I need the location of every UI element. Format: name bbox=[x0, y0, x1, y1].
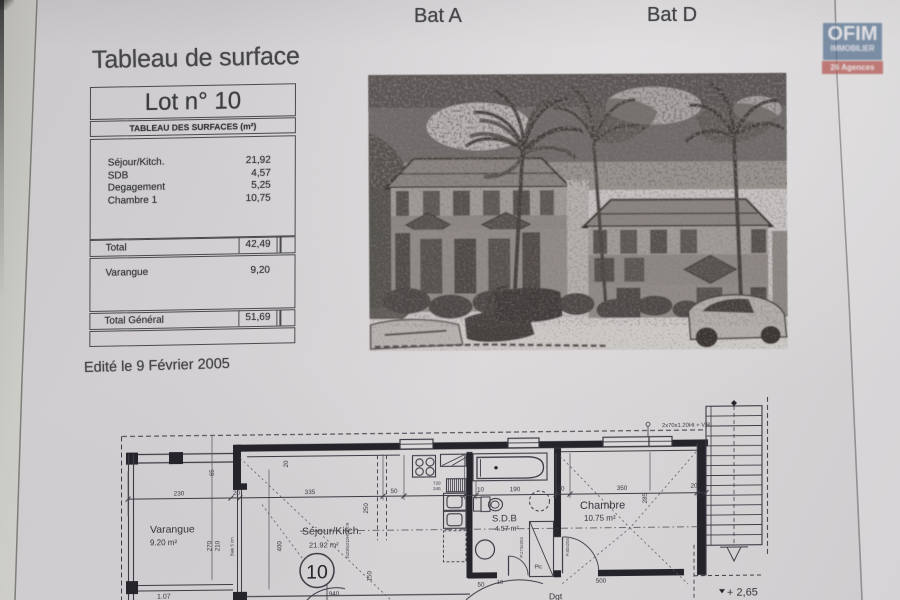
svg-text:335: 335 bbox=[305, 489, 316, 496]
svg-text:21.92 m²: 21.92 m² bbox=[309, 540, 339, 549]
svg-text:10: 10 bbox=[477, 487, 485, 494]
svg-text:20: 20 bbox=[233, 490, 241, 497]
svg-text:2x70x1.20Ht + V.R.: 2x70x1.20Ht + V.R. bbox=[662, 423, 712, 430]
svg-text:400: 400 bbox=[277, 541, 284, 552]
svg-text:1.07: 1.07 bbox=[157, 594, 171, 600]
svg-text:285: 285 bbox=[642, 492, 649, 503]
svg-text:50: 50 bbox=[390, 488, 398, 495]
svg-text:Dgt: Dgt bbox=[549, 591, 563, 600]
svg-text:P.40x204: P.40x204 bbox=[565, 538, 570, 557]
svg-text:9.20 m²: 9.20 m² bbox=[150, 538, 177, 547]
svg-text:P.173x204: P.173x204 bbox=[519, 537, 524, 558]
svg-text:65: 65 bbox=[209, 469, 216, 477]
svg-text:250: 250 bbox=[363, 503, 370, 514]
svg-text:Baie 5 cm: Baie 5 cm bbox=[230, 537, 235, 556]
svg-text:20: 20 bbox=[690, 483, 698, 490]
svg-text:940: 940 bbox=[329, 591, 340, 598]
svg-text:Varangue: Varangue bbox=[150, 523, 195, 536]
svg-text:350: 350 bbox=[617, 485, 628, 492]
svg-text:10.75 m²: 10.75 m² bbox=[584, 514, 616, 523]
svg-text:30: 30 bbox=[557, 486, 565, 493]
svg-text:150: 150 bbox=[367, 570, 374, 581]
svg-text:2x230x210Ht + V.R: 2x230x210Ht + V.R bbox=[345, 523, 350, 559]
svg-text:210: 210 bbox=[215, 540, 222, 551]
svg-text:10: 10 bbox=[306, 561, 328, 583]
svg-text:190: 190 bbox=[510, 486, 521, 493]
svg-text:S.D.B: S.D.B bbox=[492, 513, 517, 524]
svg-text:500: 500 bbox=[596, 578, 607, 585]
svg-text:Séjour/Kitch.: Séjour/Kitch. bbox=[302, 525, 362, 538]
svg-text:270: 270 bbox=[207, 540, 214, 551]
svg-text:Plc: Plc bbox=[535, 564, 543, 570]
svg-text:729: 729 bbox=[433, 481, 441, 486]
svg-text:20: 20 bbox=[283, 460, 290, 468]
svg-text:230: 230 bbox=[174, 491, 185, 498]
svg-text:+ 2,65: + 2,65 bbox=[727, 587, 758, 599]
svg-text:345: 345 bbox=[433, 486, 441, 491]
svg-text:Chambre: Chambre bbox=[580, 500, 625, 513]
